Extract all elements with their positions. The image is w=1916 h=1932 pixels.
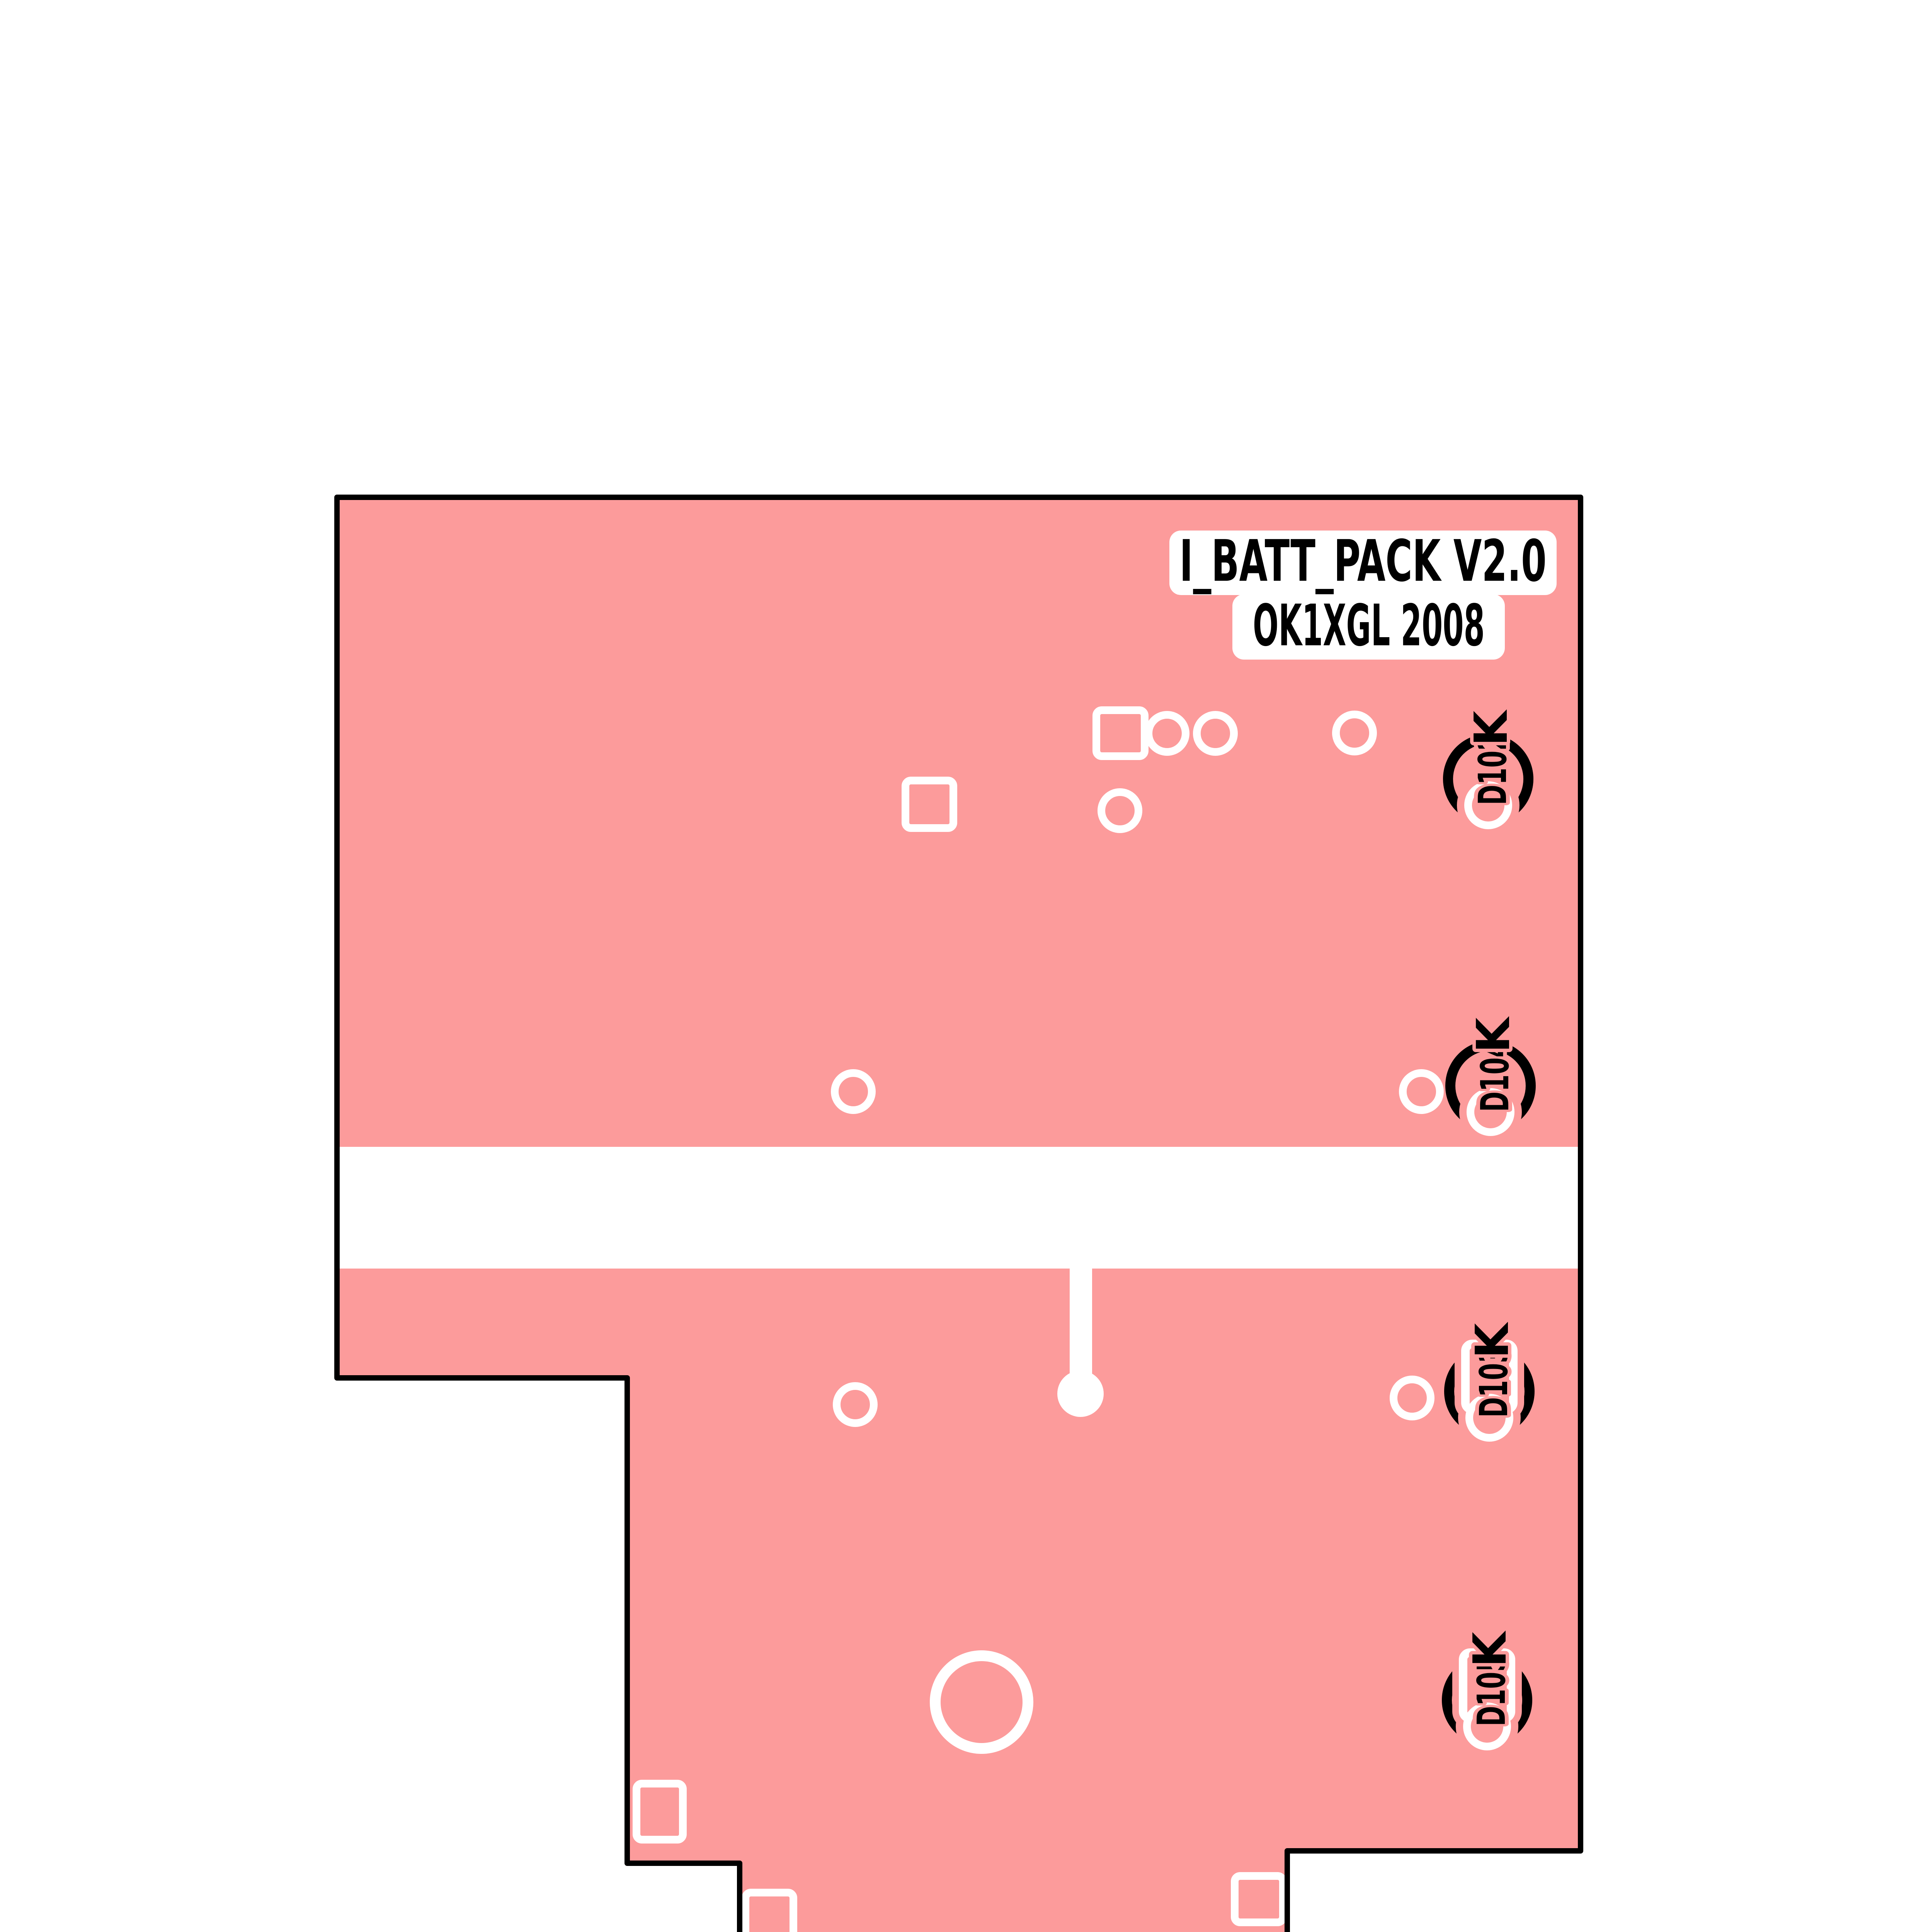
diode-d103: D103 K	[1449, 1321, 1530, 1438]
pcb-layout-page: D102 K D104 K D103 K D105 K M1	[0, 0, 1916, 1932]
isolation-band	[339, 1147, 1578, 1269]
cathode-mark-label: K	[1463, 1630, 1516, 1667]
pcb-layout-canvas: D102 K D104 K D103 K D105 K M1	[0, 0, 1916, 1932]
diode-d105: D105 K	[1447, 1630, 1527, 1747]
board-title-text: I_BATT_PACK V2.0	[1179, 528, 1547, 594]
board-subtitle-text: OK1XGL 2008	[1253, 592, 1485, 659]
cathode-mark-label: K	[1465, 1321, 1519, 1359]
cathode-mark-label: K	[1464, 709, 1518, 746]
trace-clearance-stem	[1070, 1258, 1092, 1378]
cathode-mark-label: K	[1467, 1016, 1520, 1053]
trace-clearance-dot	[1057, 1371, 1104, 1417]
